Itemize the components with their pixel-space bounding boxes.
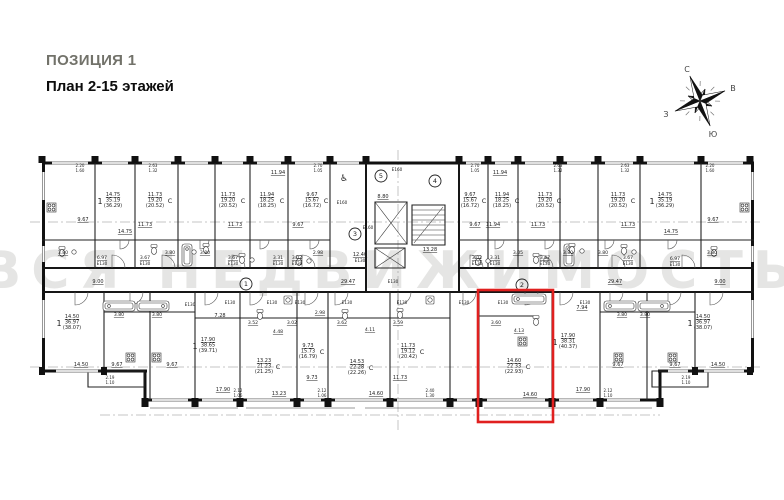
plan-label: 9.67 [469,222,480,228]
plan-label: (38.07) [63,325,81,331]
plan-label: 17.90 [216,387,230,393]
plan-label: 1.06 [318,393,327,398]
plan-label: С [320,348,325,356]
plan-label: E130 [273,261,284,266]
plan-label: E130 [459,300,470,305]
plan-label: 9.00 [714,279,725,285]
plan-label: 3.80 [640,312,650,318]
plan-label: 9.73 [306,375,317,381]
plan-label: 8.80 [377,194,388,200]
plan-label: E130 [342,300,353,305]
plan-label: E130 [185,302,196,307]
unit-number-badge: 3 [349,228,361,240]
plan-label: E130 [388,279,399,284]
plan-label: E130 [670,262,681,267]
plan-label: E130 [97,261,108,266]
plan-label: 1.10 [604,393,613,398]
plan-label: 4.48 [273,329,283,335]
plan-label: С [241,197,246,205]
compass-south-label: Ю [709,130,718,139]
plan-label: 11.73 [621,222,635,228]
plan-label: 3.62 [337,320,347,326]
plan-label: 1.60 [706,168,715,173]
plan-label: E130 [295,300,306,305]
plan-label: 29.47 [341,279,355,285]
plan-label: 9.67 [707,217,718,223]
plan-label: (20.52) [536,203,554,209]
plan-label: 1 [687,319,692,328]
plan-label: 1 [56,319,61,328]
plan-label: 3.80 [58,250,68,256]
plan-label: 9.67 [77,217,88,223]
plan-label: 3.80 [707,250,717,256]
svg-text:2: 2 [520,281,524,289]
plan-label: 7.28 [214,313,225,319]
plan-label: С [276,363,281,371]
unit-number-badge: 5 [375,170,387,182]
plan-label: 11.73 [138,222,152,228]
plan-label: (21.25) [255,369,273,375]
plan-label: 7.94 [576,305,587,311]
plan-label: (40.37) [559,344,577,350]
plan-label: 1.32 [621,168,630,173]
plan-label: 1.32 [149,168,158,173]
plan-label: E160 [337,200,348,205]
plan-label: С [631,197,636,205]
plan-label: 1.32 [554,168,563,173]
plan-label: 3.52 [248,320,258,326]
plan-label: E130 [292,261,303,266]
plan-label: (16.79) [299,354,317,360]
plan-label: E160 [392,167,403,172]
plan-label: 3.80 [200,250,210,256]
plan-label: 3.80 [598,250,608,256]
plan-label: (20.52) [609,203,627,209]
plan-label: (20.52) [219,203,237,209]
plan-label: 1.30 [426,393,435,398]
plan-label: E130 [580,300,591,305]
plan-label: 14.60 [523,392,537,398]
plan-label: 1.10 [106,380,115,385]
plan-label: E130 [498,300,509,305]
plan-label: (36.29) [104,203,122,209]
plan-label: 4.11 [365,327,375,333]
plan-label: 13.23 [272,391,286,397]
plan-label: 3.02 [287,320,297,326]
plan-label: 3.59 [393,320,403,326]
plan-label: 2.98 [315,310,325,316]
unit-number-badge: 4 [429,175,441,187]
plan-label: E130 [623,261,634,266]
plan-label: E130 [228,261,239,266]
plan-label: (22.93) [505,369,523,375]
plan-label: (39.71) [199,348,217,354]
plan-label: 3.05 [513,250,523,256]
plan-label: (36.29) [656,203,674,209]
plan-label: E130 [355,258,366,263]
plan-label: 1.05 [471,168,480,173]
plan-label: E160 [363,225,374,230]
plan-label: С [557,197,562,205]
plan-label: 11.94 [493,170,507,176]
plan-label: 9.67 [612,362,623,368]
plan-label: С [526,363,531,371]
plan-label: 29.47 [608,279,622,285]
plan-label: 1 [192,342,197,351]
plan-label: 11.73 [393,375,407,381]
svg-text:4: 4 [433,177,437,185]
compass-west-label: З [663,110,668,119]
plan-label: (18.25) [258,203,276,209]
plan-label: 1.60 [76,168,85,173]
plan-label: 1 [649,197,654,206]
plan-label: 3.60 [491,320,501,326]
plan-label: С [369,364,374,372]
plan-label: 9.00 [92,279,103,285]
plan-label: 11.94 [486,222,500,228]
plan-label: 9.67 [292,222,303,228]
plan-label: ♿ [340,174,348,184]
plan-label: С [168,197,173,205]
plan-label: С [515,197,520,205]
plan-label: E130 [267,300,278,305]
plan-label: 11.73 [531,222,545,228]
plan-label: 1.06 [234,393,243,398]
floor-plan: ВСЯ НЕДВИЖИМОСТЬ [0,0,784,500]
plan-label: С [280,197,285,205]
plan-label: (16.72) [303,203,321,209]
highlighted-unit-outline[interactable] [478,290,553,422]
plan-label: 3.80 [165,250,175,256]
plan-label: (20.42) [399,354,417,360]
plan-label: 14.50 [74,362,88,368]
plan-label: (16.72) [461,203,479,209]
plan-label: С [420,348,425,356]
plan-label: С [482,197,487,205]
plan-label: 4.13 [514,328,524,334]
plan-label: E130 [490,261,501,266]
compass-east-label: В [730,84,736,93]
plan-label: 3.80 [114,312,124,318]
plan-label: 3.80 [617,312,627,318]
plan-label: E130 [225,300,236,305]
plan-label: 2.98 [313,250,323,256]
plan-label: E130 [472,261,483,266]
plan-label: E130 [140,261,151,266]
plan-label: 11.73 [228,222,242,228]
plan-label: (18.25) [493,203,511,209]
svg-text:1: 1 [244,280,248,288]
svg-text:3: 3 [353,230,357,238]
plan-label: 9.67 [166,362,177,368]
compass-rose: С В Ю З [663,65,735,139]
plan-label: 3.80 [563,250,573,256]
plan-label: 14.60 [369,391,383,397]
plan-label: E130 [540,261,551,266]
plan-label: E130 [397,300,408,305]
plan-label: (38.07) [694,325,712,331]
plan-label: 9.67 [111,362,122,368]
plan-label: 1.10 [682,380,691,385]
screenshot-root: ПОЗИЦИЯ 1 План 2-15 этажей ВСЯ НЕДВИЖИМО… [0,0,784,500]
plan-label: 11.94 [271,170,285,176]
svg-text:5: 5 [379,172,383,180]
plan-label: 13.28 [423,247,437,253]
wall-piers-ends [42,367,750,375]
plan-label: 14.75 [664,229,678,235]
plan-label: 14.50 [711,362,725,368]
plan-label: (20.52) [146,203,164,209]
plan-label: 3.80 [152,312,162,318]
plan-label: 9.67 [669,362,680,368]
plan-label: 14.75 [118,229,132,235]
compass-north-label: С [684,65,690,74]
plan-label: 1 [97,197,102,206]
plan-label: С [324,197,329,205]
plan-label: 1.05 [314,168,323,173]
plan-label: 17.90 [576,387,590,393]
plan-label: (22.26) [348,370,366,376]
